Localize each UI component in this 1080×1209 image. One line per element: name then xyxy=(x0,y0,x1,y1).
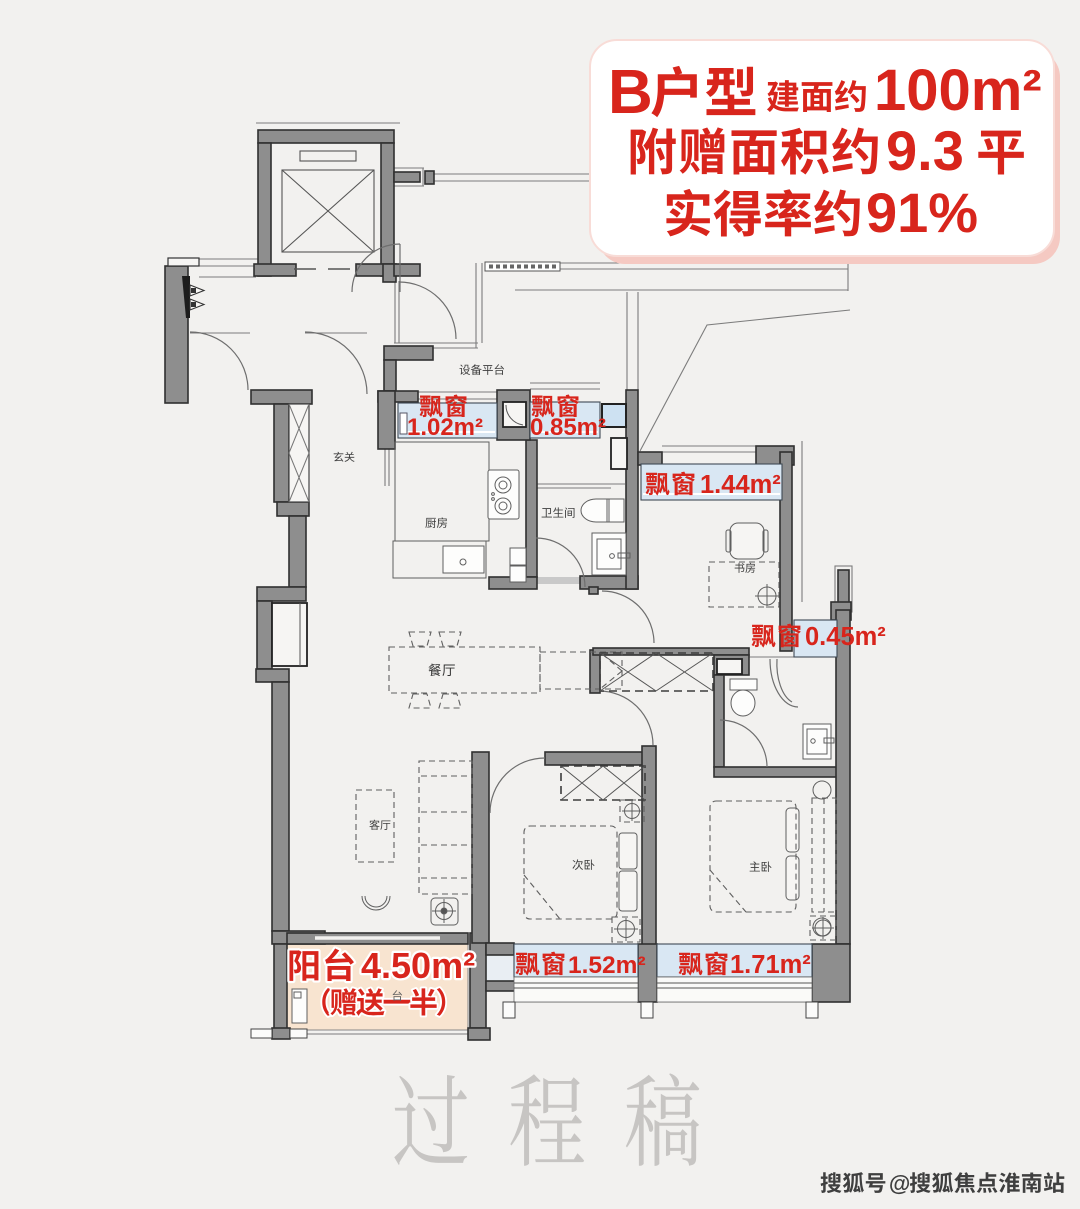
svg-text:B: B xyxy=(608,58,653,127)
svg-text:1.02m²: 1.02m² xyxy=(407,414,483,441)
svg-text:1.44m²: 1.44m² xyxy=(700,471,781,499)
svg-text:0.85m²: 0.85m² xyxy=(530,414,606,441)
svg-text:1.71m²: 1.71m² xyxy=(730,951,811,979)
svg-text:@: @ xyxy=(889,1171,910,1196)
svg-text:0.45m²: 0.45m² xyxy=(805,623,886,651)
svg-text:100m²: 100m² xyxy=(874,58,1042,123)
svg-text:1.52m²: 1.52m² xyxy=(568,952,646,979)
svg-text:9.3: 9.3 xyxy=(886,119,964,182)
svg-text:4.50m²: 4.50m² xyxy=(361,945,475,986)
svg-text:91%: 91% xyxy=(866,181,978,244)
